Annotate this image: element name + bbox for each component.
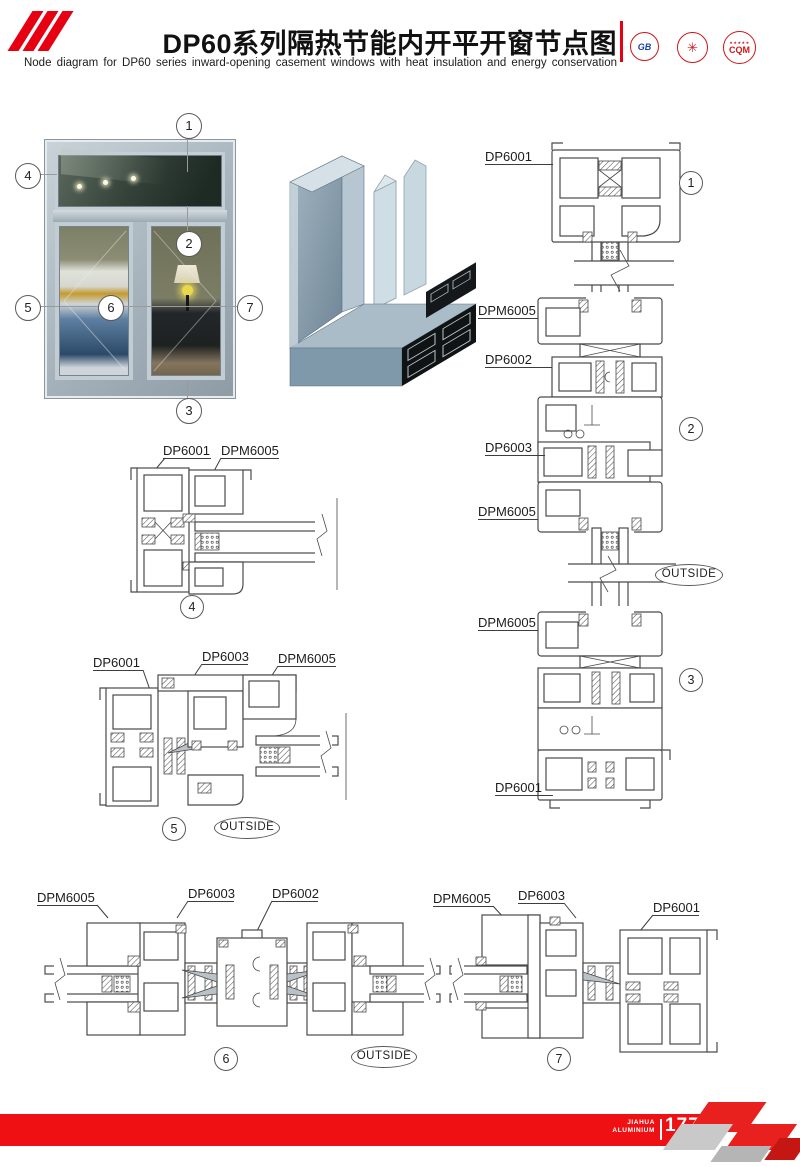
horizontal-section-diagram: DPM6005 DP6003 DP6002 DPM6005 DP6003 DP6… <box>30 885 795 1080</box>
leader-line <box>39 306 59 307</box>
outside-label: OUTSIDE <box>214 817 280 839</box>
callout-7: 7 <box>237 295 263 321</box>
callout-7-section: 7 <box>547 1047 571 1071</box>
label-dpm6005: DPM6005 <box>221 443 279 459</box>
catalog-page: DP60系列隔热节能内开平开窗节点图 Node diagram for DP60… <box>0 0 800 1167</box>
window-photo <box>45 140 235 398</box>
leader-line <box>187 137 188 172</box>
cqm-certification-logo: ★★★★★ CQM <box>723 31 756 64</box>
label-dp6001: DP6001 <box>495 780 553 796</box>
label-dp6001: DP6001 <box>93 655 143 671</box>
callout-5-section: 5 <box>162 817 186 841</box>
footer-brand: JIAHUA ALUMINIUM <box>555 1119 655 1136</box>
ceiling-light <box>77 184 82 189</box>
leader-line <box>122 306 237 307</box>
callout-1-section: 1 <box>679 171 703 195</box>
leader-line <box>39 174 57 175</box>
page-title: DP60系列隔热节能内开平开窗节点图 <box>162 22 617 61</box>
detail-5-drawing <box>88 645 373 845</box>
leader-line <box>187 206 188 231</box>
label-dp6002: DP6002 <box>485 352 552 368</box>
emblem-logo-glyph: ✳ <box>687 41 698 54</box>
label-dpm6005: DPM6005 <box>478 504 538 520</box>
label-dpm6005: DPM6005 <box>433 891 493 907</box>
leader-line <box>187 380 188 398</box>
emblem-certification-logo: ✳ <box>677 32 708 63</box>
label-dpm6005: DPM6005 <box>278 651 336 667</box>
callout-6: 6 <box>98 295 124 321</box>
ceiling-light <box>131 176 136 181</box>
callout-4: 4 <box>15 163 41 189</box>
vertical-section-drawing <box>480 120 800 810</box>
footer-brand-bottom: ALUMINIUM <box>555 1127 655 1135</box>
ceiling-reflection <box>61 148 211 190</box>
ceiling-light <box>103 180 108 185</box>
label-dp6001: DP6001 <box>653 900 699 916</box>
label-dpm6005: DPM6005 <box>37 890 97 906</box>
gb-logo-text: GB <box>638 42 652 52</box>
label-dp6002: DP6002 <box>272 886 318 902</box>
callout-4-section: 4 <box>180 595 204 619</box>
transom-bar <box>53 210 227 222</box>
cqm-logo-text: CQM <box>729 45 750 55</box>
page-subtitle: Node diagram for DP60 series inward-open… <box>24 57 617 69</box>
footer-brand-top: JIAHUA <box>555 1119 655 1127</box>
header-divider <box>620 21 623 62</box>
callout-3-section: 3 <box>679 668 703 692</box>
label-dp6003: DP6003 <box>518 888 564 904</box>
gb-certification-logo: GB <box>630 32 659 61</box>
callout-2: 2 <box>176 231 202 257</box>
vertical-section-diagram: DP6001 DPM6005 DP6002 DP6003 DPM6005 DPM… <box>455 118 800 818</box>
label-dpm6005: DPM6005 <box>478 303 538 319</box>
label-dp6003: DP6003 <box>188 886 234 902</box>
label-dp6001: DP6001 <box>485 149 553 165</box>
label-dp6003: DP6003 <box>485 440 545 456</box>
callout-2-section: 2 <box>679 417 703 441</box>
footer-deco-shape <box>710 1146 771 1162</box>
label-dpm6005: DPM6005 <box>478 615 538 631</box>
callout-5: 5 <box>15 295 41 321</box>
callout-6-section: 6 <box>214 1047 238 1071</box>
label-dp6003: DP6003 <box>202 649 248 665</box>
detail-4-diagram: DP6001 DPM6005 4 <box>125 440 345 625</box>
footer-divider <box>660 1119 662 1140</box>
leader-line <box>60 306 98 307</box>
outside-label: OUTSIDE <box>655 564 723 586</box>
profile-3d-render <box>268 132 480 398</box>
callout-3: 3 <box>176 398 202 424</box>
detail-5-diagram: DP6001 DP6003 DPM6005 5 OUTSIDE <box>88 645 373 845</box>
label-dp6001: DP6001 <box>163 443 211 459</box>
callout-1: 1 <box>176 113 202 139</box>
transom-glass <box>55 152 225 210</box>
outside-label: OUTSIDE <box>351 1046 417 1068</box>
detail-4-drawing <box>125 440 345 625</box>
